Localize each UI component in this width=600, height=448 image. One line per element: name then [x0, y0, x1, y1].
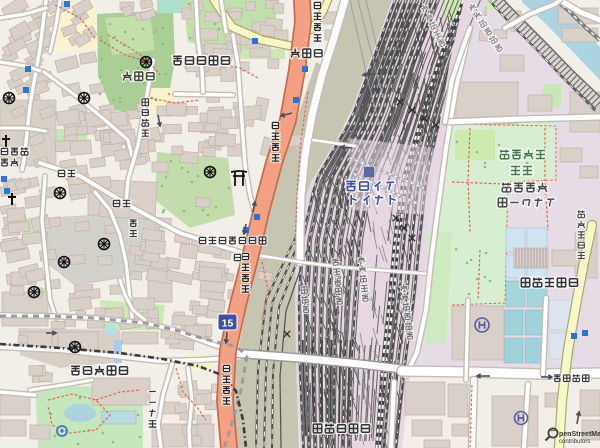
svg-text:penStreetMap: penStreetMap	[559, 431, 600, 438]
svg-text:contributors: contributors	[559, 439, 590, 445]
svg-text:15: 15	[222, 318, 234, 330]
